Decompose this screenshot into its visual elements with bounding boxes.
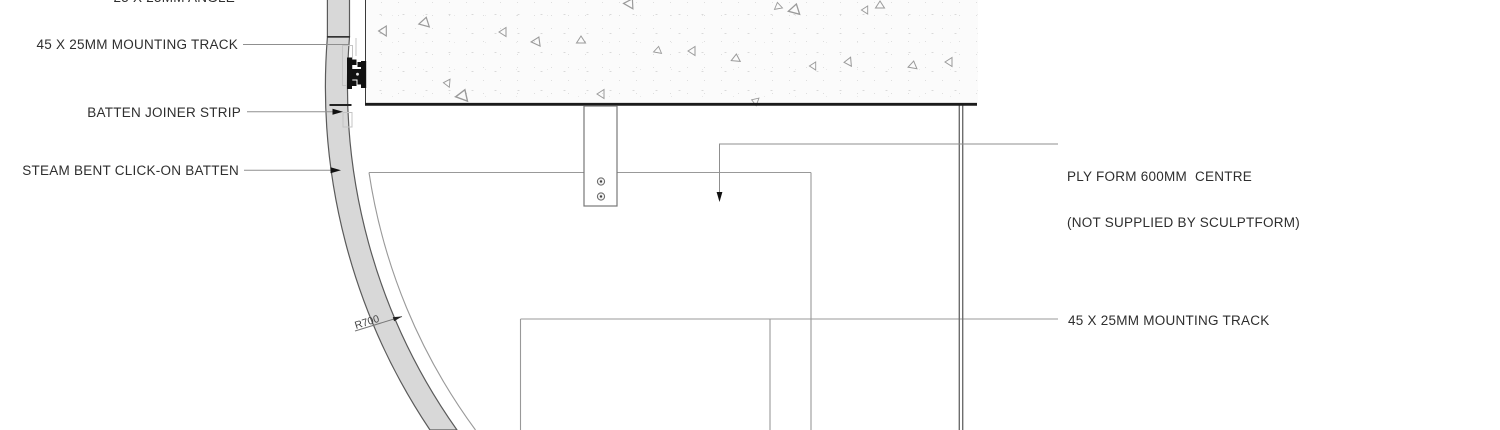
ply-form-outline <box>369 173 811 430</box>
ply-form-inner-outline <box>521 319 1059 430</box>
leader-ply-form <box>720 144 1059 195</box>
screw-icon <box>597 193 604 200</box>
detail-drawing: R700 25 X 25MM ANGLE 45 X 25MM MOUNTING … <box>0 0 1500 430</box>
mounting-track-profile <box>347 58 366 90</box>
label-batten-joiner-strip: BATTEN JOINER STRIP <box>0 105 241 121</box>
aggregate-hatch-triangles <box>379 0 952 106</box>
label-angle-top: 25 X 25MM ANGLE <box>0 0 235 5</box>
steam-bent-batten <box>325 0 457 430</box>
label-ply-form-line1: PLY FORM 600MM CENTRE <box>1067 169 1300 185</box>
screw-icon <box>597 178 604 185</box>
label-steam-bent-batten: STEAM BENT CLICK-ON BATTEN <box>0 163 239 179</box>
label-mounting-track-right: 45 X 25MM MOUNTING TRACK <box>1068 313 1270 329</box>
label-mounting-track-left: 45 X 25MM MOUNTING TRACK <box>0 37 238 53</box>
leader-arrow-ply-form <box>717 192 723 202</box>
label-ply-form: PLY FORM 600MM CENTRE (NOT SUPPLIED BY S… <box>1067 138 1300 262</box>
hanger-bracket <box>584 106 617 206</box>
label-ply-form-line2: (NOT SUPPLIED BY SCULPTFORM) <box>1067 215 1300 231</box>
mounting-track-vertical <box>959 105 962 430</box>
